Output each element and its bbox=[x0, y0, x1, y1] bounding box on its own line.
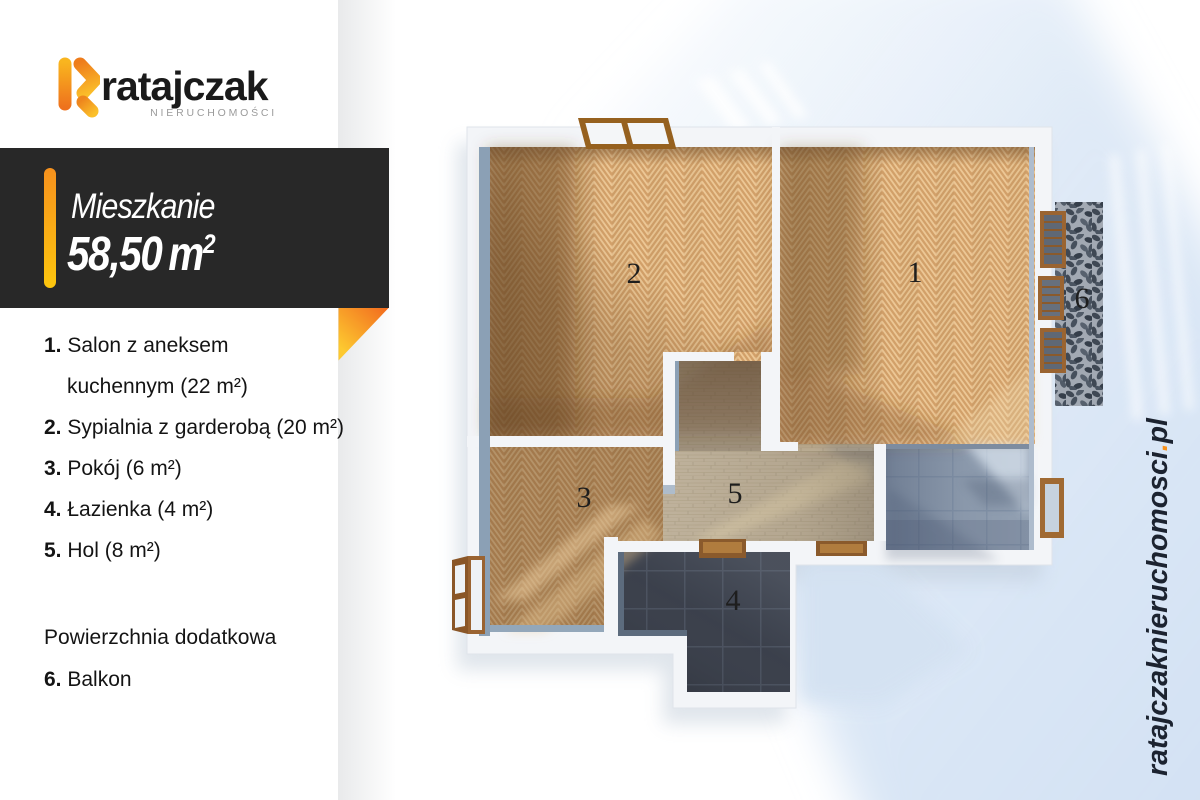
svg-text:6: 6 bbox=[1075, 282, 1090, 315]
svg-text:3: 3 bbox=[577, 481, 592, 514]
svg-text:4: 4 bbox=[726, 584, 741, 617]
svg-text:ratajczaknieruchomosci.pl: ratajczaknieruchomosci.pl bbox=[1142, 417, 1174, 776]
svg-text:5: 5 bbox=[728, 477, 743, 510]
svg-text:1: 1 bbox=[908, 256, 923, 289]
svg-text:2: 2 bbox=[627, 257, 642, 290]
